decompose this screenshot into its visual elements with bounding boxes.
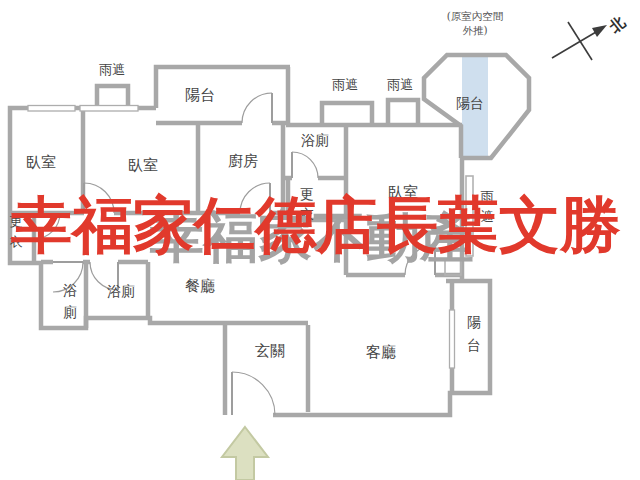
room-label-bath-left-char-0: 浴 xyxy=(63,282,77,298)
room-label-bath-left-char-1: 廁 xyxy=(63,304,77,320)
room-label-balcony-top: 陽台 xyxy=(185,86,215,104)
rain-shield-box-top-left xyxy=(97,86,128,107)
annotation-line-2: 外推) xyxy=(462,24,487,36)
door-balcony-top xyxy=(242,93,272,123)
room-label-entry: 玄關 xyxy=(255,342,285,360)
annotation-line-1: (原室內空間 xyxy=(447,10,504,22)
floor-plan: 北 (原室內空間 外推) 臥室臥室廚房浴廁更衣臥室浴廁浴廁餐廳玄關客廳陽台陽台陽… xyxy=(0,0,640,480)
entry-arrow-icon xyxy=(222,427,268,480)
wall-balcony-top xyxy=(156,67,290,123)
window-top-2 xyxy=(80,106,138,112)
room-label-kitchen: 廚房 xyxy=(228,152,258,170)
label-rain-shield-mid-2: 雨遮 xyxy=(387,77,413,92)
window-living-balcony xyxy=(450,310,455,368)
room-label-dining: 餐廳 xyxy=(185,277,215,295)
room-label-bedroom-2: 臥室 xyxy=(128,156,158,174)
compass-north-label: 北 xyxy=(605,12,629,37)
room-label-living: 客廳 xyxy=(366,343,396,361)
agent-watermark: 幸福家仁德店長葉文勝 xyxy=(11,195,621,256)
window-top-1 xyxy=(28,106,75,112)
door-entry xyxy=(232,372,275,415)
room-label-bath-2: 浴廁 xyxy=(107,283,135,299)
room-label-bath-top: 浴廁 xyxy=(301,132,329,148)
room-label-balcony-right-char-0: 陽 xyxy=(467,314,481,330)
room-label-balcony-right-char-1: 台 xyxy=(467,337,481,353)
room-label-bedroom-1: 臥室 xyxy=(26,153,56,171)
label-rain-shield-top-left: 雨遮 xyxy=(99,62,125,77)
compass-icon: 北 xyxy=(552,12,630,60)
room-label-balcony-octagon: 陽台 xyxy=(456,95,484,111)
label-rain-shield-mid-1: 雨遮 xyxy=(332,77,358,92)
door-bath-top xyxy=(292,152,318,178)
rain-shield-box-mid-1 xyxy=(322,103,372,125)
rain-shield-box-mid-2 xyxy=(388,100,418,125)
